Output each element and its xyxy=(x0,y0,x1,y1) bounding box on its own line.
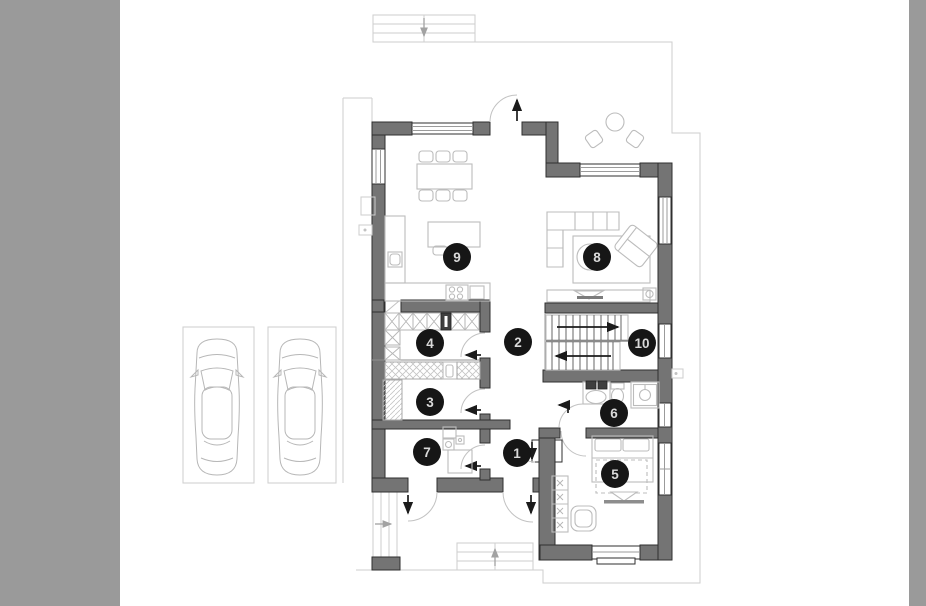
porch-door-arc-left xyxy=(408,492,437,521)
terrace-chair xyxy=(584,129,603,148)
entry-door-leaf xyxy=(532,440,539,462)
marker-label: 5 xyxy=(611,467,619,482)
window-living-east xyxy=(659,197,671,244)
room4-door-arc xyxy=(461,333,485,357)
window-north xyxy=(412,123,473,134)
window-stairs-east xyxy=(659,324,671,358)
north-steps xyxy=(373,15,475,42)
shelving xyxy=(383,380,402,420)
room-marker-1: 1 xyxy=(503,439,531,467)
dining-table xyxy=(417,151,472,201)
terrace-door-arc xyxy=(490,95,517,122)
room-marker-6: 6 xyxy=(600,399,628,427)
bedroom-armchair xyxy=(571,506,596,531)
room-marker-5: 5 xyxy=(601,460,629,488)
armchair xyxy=(613,224,658,269)
kitchen-door-leaf xyxy=(386,301,399,312)
marker-label: 9 xyxy=(453,250,461,265)
room-marker-3: 3 xyxy=(416,388,444,416)
marker-label: 8 xyxy=(593,250,601,265)
sink xyxy=(586,391,606,404)
room-marker-10: 10 xyxy=(628,329,656,357)
parking-space-left xyxy=(183,327,254,483)
bedroom-furniture xyxy=(552,436,653,532)
wardrobe xyxy=(457,362,480,379)
porch-pillar xyxy=(372,557,400,570)
floor-plan-canvas: 1 2 3 4 5 6 7 8 xyxy=(0,0,926,606)
kitchen-dining-furniture xyxy=(385,151,490,301)
parking-space-right xyxy=(268,327,336,483)
marker-label: 1 xyxy=(513,446,521,461)
room-marker-4: 4 xyxy=(416,329,444,357)
kitchen-sink xyxy=(470,286,484,299)
tv-screen xyxy=(577,296,603,299)
bedroom-door-arc xyxy=(561,431,586,456)
cooktop xyxy=(446,285,468,300)
window-bedroom-south xyxy=(592,546,640,564)
viewer-letterbox-left xyxy=(0,0,120,606)
terrace-chair xyxy=(625,129,644,148)
bathroom-door-arc xyxy=(559,404,583,427)
terrace-furniture xyxy=(584,113,644,149)
room-marker-2: 2 xyxy=(504,328,532,356)
marker-label: 7 xyxy=(423,445,431,460)
marker-label: 3 xyxy=(426,395,434,410)
window-living-north xyxy=(580,164,640,176)
kitchen-counter xyxy=(385,216,490,301)
tv-stand xyxy=(547,288,656,302)
room-marker-8: 8 xyxy=(583,243,611,271)
wardrobe xyxy=(385,362,443,379)
car-icon xyxy=(191,339,243,475)
marker-label: 4 xyxy=(426,336,434,351)
west-steps xyxy=(372,492,400,570)
floor-plan-viewer: 1 2 3 4 5 6 7 8 xyxy=(0,0,926,606)
staircase xyxy=(546,315,628,370)
window-west xyxy=(372,149,385,184)
car-icon xyxy=(274,339,326,475)
parking-area xyxy=(183,327,336,483)
front-door-arc xyxy=(503,492,533,522)
marker-label: 6 xyxy=(610,406,618,421)
terrace-table xyxy=(606,113,624,131)
shower xyxy=(631,382,659,408)
bathroom-door-arrow-icon xyxy=(559,405,568,413)
tv-icon xyxy=(611,492,637,501)
vestibule-door-leaf xyxy=(555,440,562,462)
south-steps xyxy=(457,543,533,570)
window-bedroom-east xyxy=(659,443,671,495)
bedroom-tv xyxy=(604,492,644,504)
marker-label: 10 xyxy=(634,336,649,351)
room-marker-9: 9 xyxy=(443,243,471,271)
room-marker-7: 7 xyxy=(413,438,441,466)
window-bath-east xyxy=(659,403,671,427)
viewer-letterbox-right xyxy=(909,0,926,606)
marker-label: 2 xyxy=(514,335,522,350)
storage-box xyxy=(448,450,472,473)
